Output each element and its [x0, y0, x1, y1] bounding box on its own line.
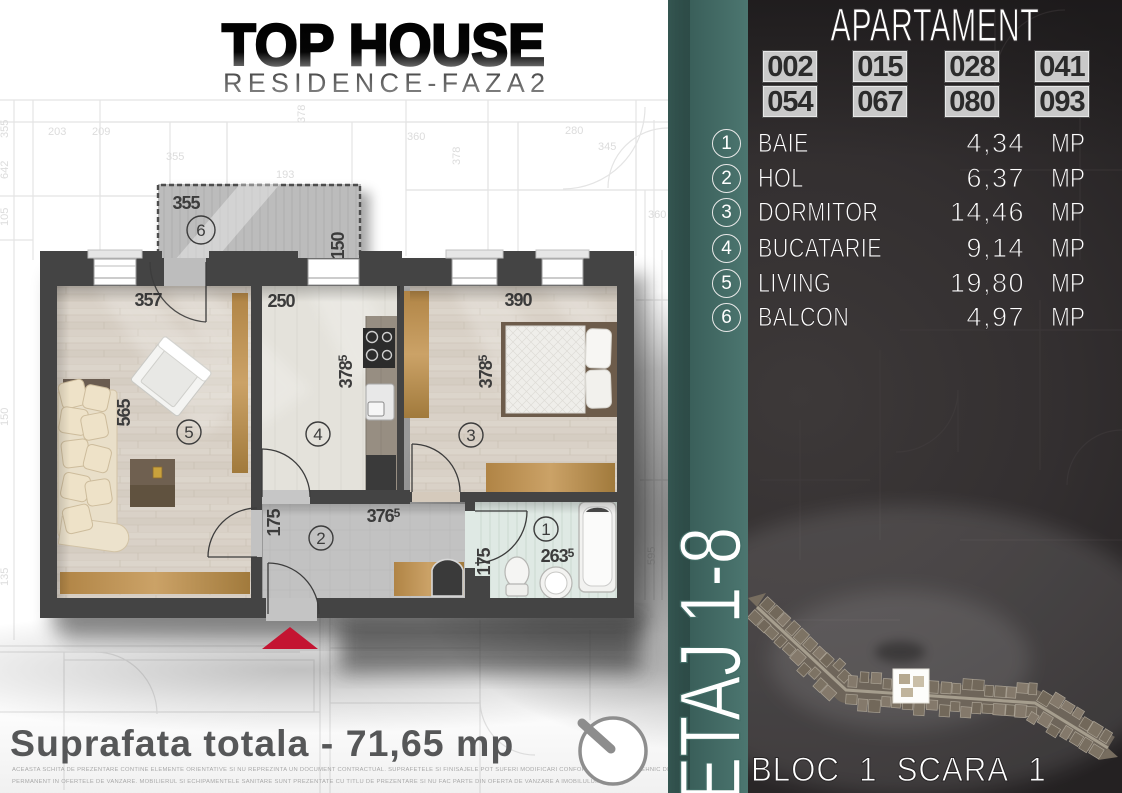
svg-text:6: 6	[196, 221, 205, 240]
svg-text:175: 175	[474, 548, 494, 576]
svg-text:5: 5	[184, 423, 193, 442]
svg-text:1: 1	[541, 520, 550, 539]
svg-text:565: 565	[114, 399, 134, 427]
svg-text:RESIDENCE-FAZA2: RESIDENCE-FAZA2	[223, 68, 545, 98]
svg-text:355: 355	[172, 193, 200, 213]
svg-text:2: 2	[316, 529, 325, 548]
svg-text:3: 3	[466, 426, 475, 445]
svg-text:4: 4	[313, 425, 322, 444]
svg-text:150: 150	[328, 232, 348, 260]
